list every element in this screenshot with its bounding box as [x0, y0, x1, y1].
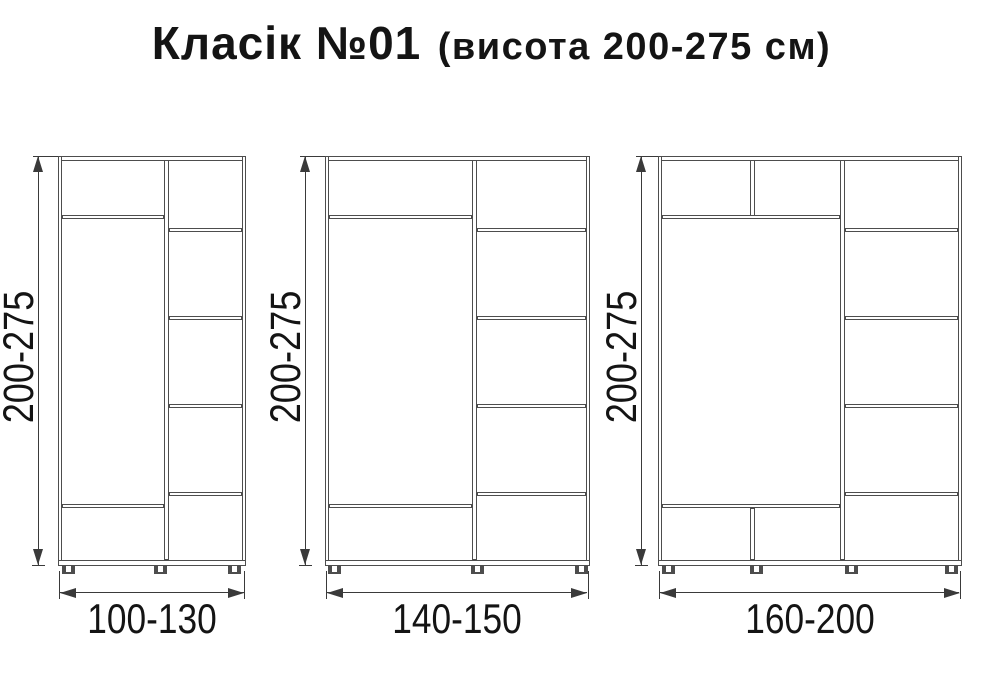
- shelf: [477, 228, 586, 232]
- shelf: [329, 215, 472, 219]
- arrow-up-icon: [300, 156, 310, 172]
- right-side-panel: [242, 156, 246, 566]
- right-side-panel: [958, 156, 962, 566]
- shelf: [845, 228, 958, 232]
- shelf: [662, 215, 840, 219]
- top-panel: [658, 156, 962, 161]
- shelf: [662, 504, 840, 508]
- arrow-up-icon: [636, 156, 646, 172]
- foot: [154, 566, 167, 574]
- vertical-divider: [472, 160, 477, 560]
- arrow-down-icon: [300, 549, 310, 565]
- width-dimension-label: 140-150: [373, 597, 541, 641]
- foot: [228, 566, 241, 574]
- right-side-panel: [586, 156, 590, 566]
- width-dimension-line: [60, 592, 244, 593]
- arrow-down-icon: [636, 549, 646, 565]
- width-dimension-line: [327, 592, 587, 593]
- extension-tick: [32, 565, 45, 566]
- height-dimension-label: 200-275: [600, 273, 644, 441]
- arrow-right-icon: [944, 588, 960, 598]
- foot: [845, 566, 858, 574]
- foot: [328, 566, 341, 574]
- width-dimension-label: 100-130: [68, 597, 236, 641]
- wardrobe-1: [58, 156, 246, 566]
- extension-tick: [635, 565, 648, 566]
- bottom-panel: [58, 560, 246, 566]
- foot: [575, 566, 588, 574]
- height-dimension-label: 200-275: [264, 273, 308, 441]
- width-dimension-label: 160-200: [726, 597, 894, 641]
- extension-line: [636, 156, 658, 157]
- extension-line: [300, 156, 325, 157]
- shelf: [477, 316, 586, 320]
- shelf: [169, 404, 242, 408]
- shelf: [477, 492, 586, 496]
- shelf: [845, 404, 958, 408]
- arrow-up-icon: [33, 156, 43, 172]
- bottom-panel: [325, 560, 590, 566]
- title-main: Класік №01: [152, 17, 422, 69]
- width-dimension-line: [660, 592, 959, 593]
- top-panel: [325, 156, 590, 161]
- title-sub: (висота 200-275 см): [438, 26, 832, 68]
- arrow-left-icon: [660, 588, 676, 598]
- shelf: [169, 228, 242, 232]
- extension-tick: [299, 565, 312, 566]
- top-panel: [58, 156, 246, 161]
- bottom-panel: [658, 560, 962, 566]
- foot: [662, 566, 675, 574]
- extension-line: [244, 571, 245, 599]
- arrow-down-icon: [33, 549, 43, 565]
- foot: [471, 566, 484, 574]
- wardrobe-diagram: Класік №01 (висота 200-275 см) 200-275 1…: [0, 0, 983, 700]
- extension-line: [33, 156, 58, 157]
- wardrobe-2: [325, 156, 590, 566]
- shelf: [169, 316, 242, 320]
- foot: [750, 566, 763, 574]
- arrow-left-icon: [327, 588, 343, 598]
- shelf: [477, 404, 586, 408]
- shelf: [169, 492, 242, 496]
- shelf: [845, 316, 958, 320]
- wardrobe-3: [658, 156, 962, 566]
- page-title: Класік №01 (висота 200-275 см): [0, 14, 983, 72]
- top-sub-divider: [750, 160, 755, 219]
- shelf: [845, 492, 958, 496]
- shelf: [62, 504, 164, 508]
- shelf: [62, 215, 164, 219]
- foot: [62, 566, 75, 574]
- vertical-divider: [840, 160, 845, 560]
- extension-line: [588, 571, 589, 599]
- foot: [945, 566, 958, 574]
- height-dimension-label: 200-275: [0, 273, 41, 441]
- shelf: [329, 504, 472, 508]
- vertical-divider: [164, 160, 169, 560]
- arrow-right-icon: [571, 588, 587, 598]
- bottom-sub-divider: [750, 508, 755, 560]
- extension-line: [960, 571, 961, 599]
